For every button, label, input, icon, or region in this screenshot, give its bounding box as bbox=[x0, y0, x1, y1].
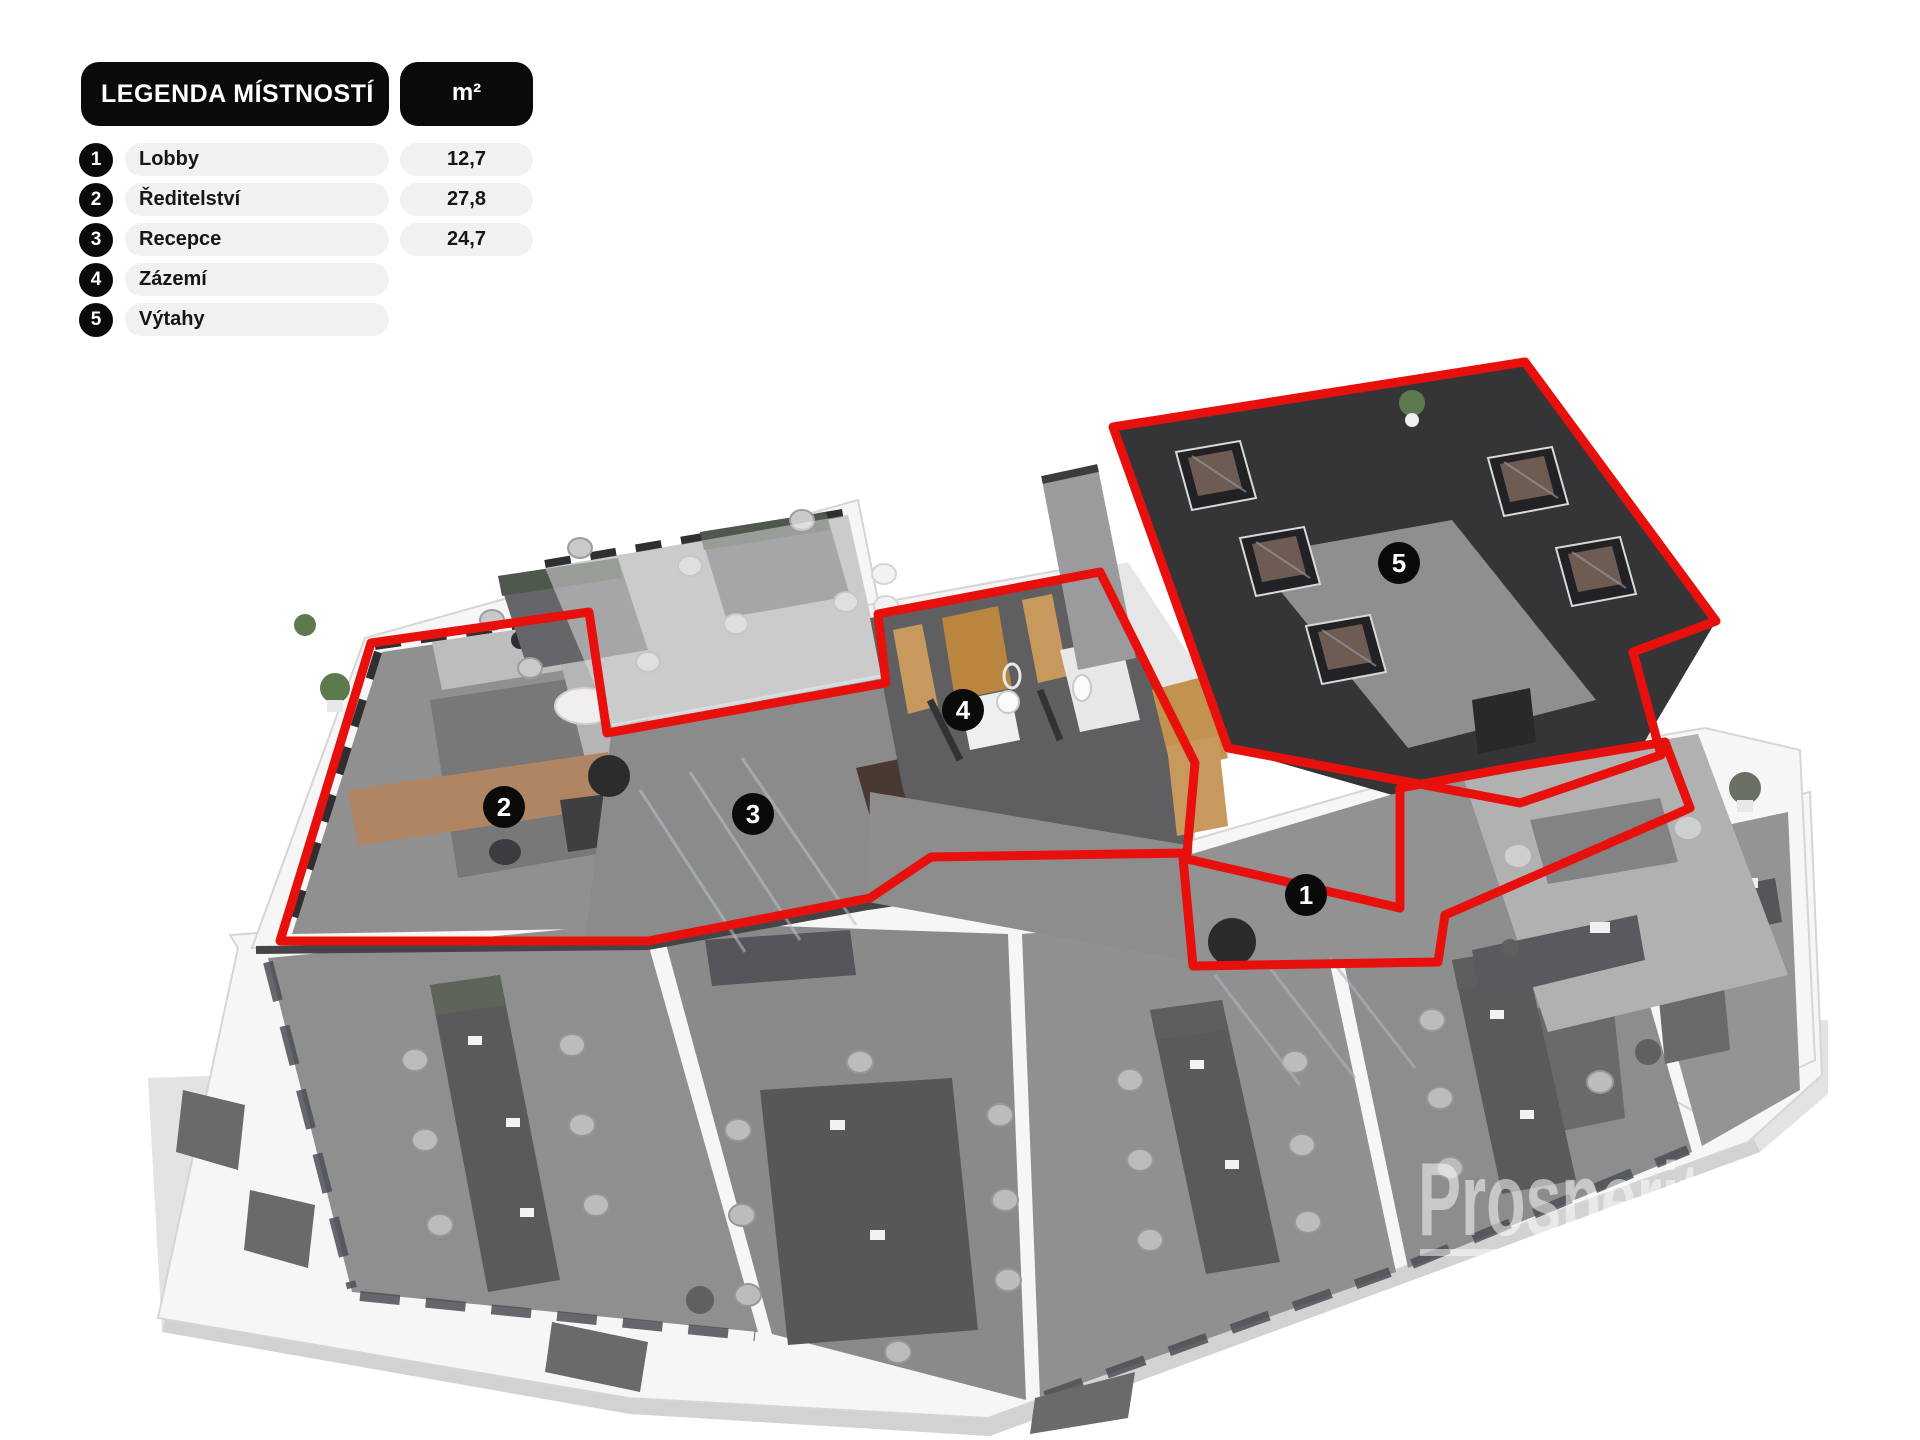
room-badge-5: 5 bbox=[1378, 542, 1420, 584]
svg-text:4: 4 bbox=[956, 695, 971, 725]
legend-row-1: 1Lobby12,7 bbox=[79, 143, 533, 176]
legend-row-3: 3Recepce24,7 bbox=[79, 223, 533, 256]
legend-row-label: Zázemí bbox=[125, 263, 389, 296]
watermark-clipped-letter bbox=[1901, 1158, 1920, 1236]
watermark-underline bbox=[1420, 1249, 1553, 1256]
legend-row-badge: 4 bbox=[79, 263, 113, 297]
legend-row-badge: 3 bbox=[79, 223, 113, 257]
room-badge-3: 3 bbox=[732, 793, 774, 835]
legend-unit-header: m² bbox=[400, 62, 533, 126]
plant bbox=[1399, 390, 1425, 416]
legend-row-label: Ředitelství bbox=[125, 183, 389, 216]
legend-row-label: Recepce bbox=[125, 223, 389, 256]
legend-row-badge: 1 bbox=[79, 143, 113, 177]
legend-row-label: Výtahy bbox=[125, 303, 389, 336]
legend-row-2: 2Ředitelství27,8 bbox=[79, 183, 533, 216]
legend: LEGENDA MÍSTNOSTÍ m² 1Lobby12,72Ředitels… bbox=[79, 62, 533, 343]
legend-row-label: Lobby bbox=[125, 143, 389, 176]
legend-row-badge: 2 bbox=[79, 183, 113, 217]
legend-row-area: 12,7 bbox=[400, 143, 533, 176]
room-badge-4: 4 bbox=[942, 689, 984, 731]
legend-row-5: 5Výtahy bbox=[79, 303, 533, 336]
svg-text:1: 1 bbox=[1299, 880, 1313, 910]
legend-row-badge: 5 bbox=[79, 303, 113, 337]
legend-title: LEGENDA MÍSTNOSTÍ bbox=[81, 62, 389, 126]
svg-text:5: 5 bbox=[1392, 548, 1406, 578]
room-badge-1: 1 bbox=[1285, 874, 1327, 916]
legend-header: LEGENDA MÍSTNOSTÍ m² bbox=[79, 62, 533, 126]
room-badge-2: 2 bbox=[483, 786, 525, 828]
legend-row-4: 4Zázemí bbox=[79, 263, 533, 296]
svg-text:3: 3 bbox=[746, 799, 760, 829]
svg-text:2: 2 bbox=[497, 792, 511, 822]
legend-row-area: 27,8 bbox=[400, 183, 533, 216]
floorplan-page: 12345 LEGENDA MÍSTNOSTÍ m² 1Lobby12,72Ře… bbox=[0, 0, 1920, 1440]
legend-row-area: 24,7 bbox=[400, 223, 533, 256]
legend-rows: 1Lobby12,72Ředitelství27,83Recepce24,74Z… bbox=[79, 143, 533, 336]
